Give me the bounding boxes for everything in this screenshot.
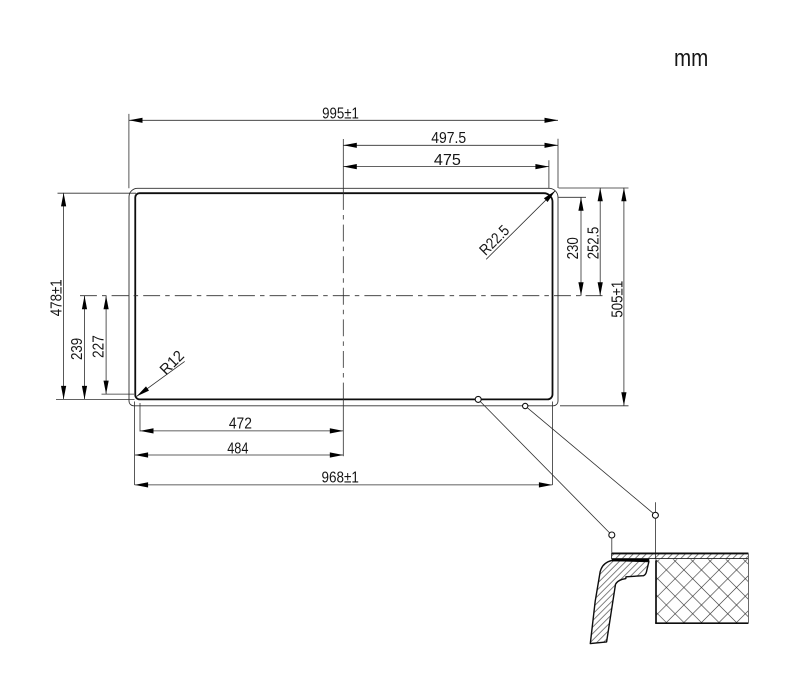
svg-text:R12: R12 [157, 348, 188, 379]
svg-text:505±1: 505±1 [610, 281, 627, 318]
svg-text:R22.5: R22.5 [476, 222, 513, 259]
svg-text:472: 472 [229, 415, 252, 432]
svg-text:475: 475 [434, 152, 461, 169]
svg-text:995±1: 995±1 [322, 105, 359, 122]
svg-text:230: 230 [565, 237, 582, 260]
svg-text:484: 484 [227, 441, 248, 458]
svg-text:mm: mm [674, 45, 708, 72]
svg-text:227: 227 [91, 335, 108, 358]
svg-text:478±1: 478±1 [48, 279, 65, 316]
svg-text:252.5: 252.5 [585, 227, 602, 260]
svg-text:497.5: 497.5 [431, 130, 466, 147]
svg-text:968±1: 968±1 [322, 470, 359, 487]
svg-text:239: 239 [69, 338, 86, 360]
